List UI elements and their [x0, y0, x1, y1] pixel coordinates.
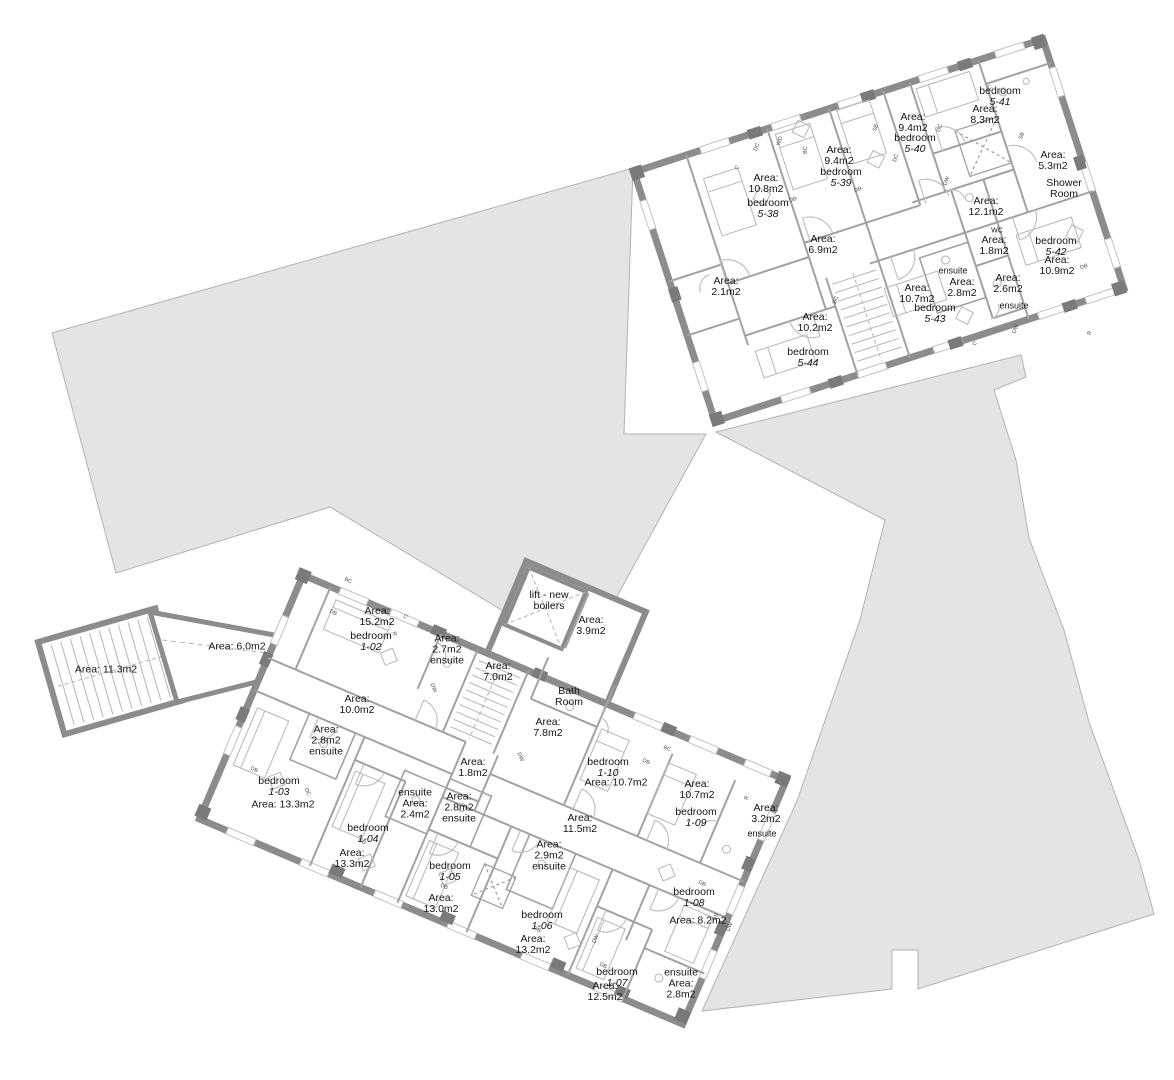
floor-plan-drawing [0, 0, 1174, 1080]
upper-building [629, 33, 1129, 427]
floor-plan-page: Area:10.8m2bedroom5-38Area:9.4m2bedroom5… [0, 0, 1174, 1080]
site-mass-right [702, 355, 1154, 1011]
